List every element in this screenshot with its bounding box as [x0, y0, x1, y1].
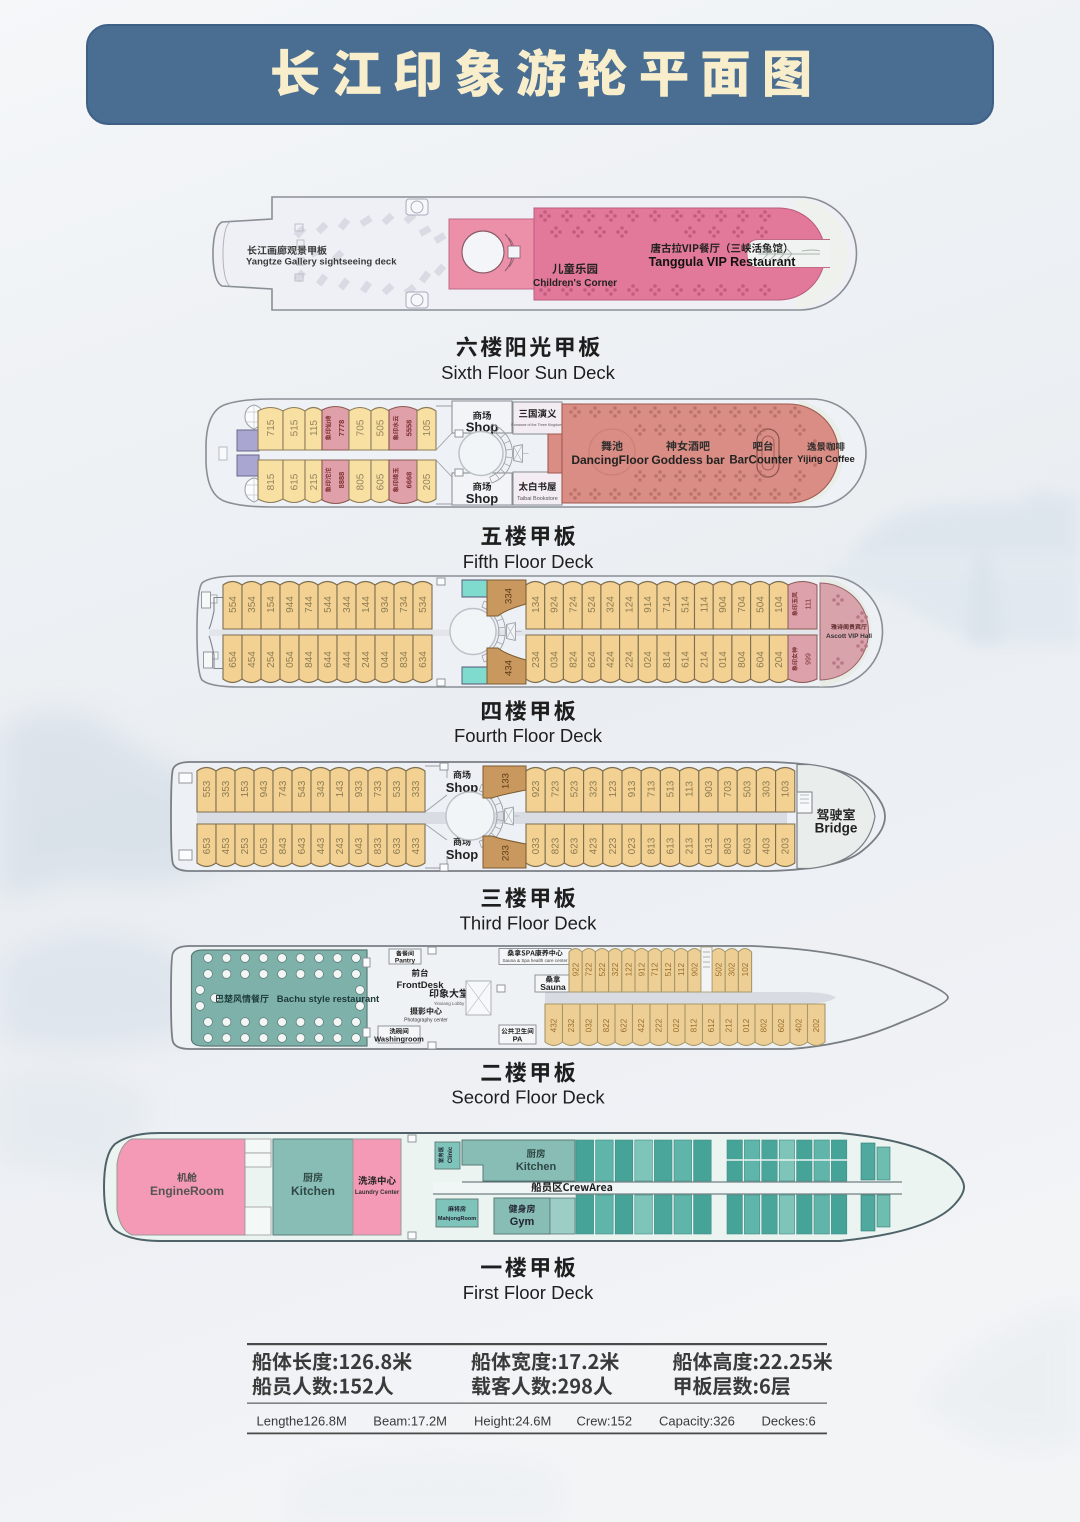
svg-text:634: 634	[418, 651, 429, 668]
svg-text:803: 803	[723, 837, 734, 854]
svg-text:454: 454	[247, 651, 258, 668]
svg-text:Sauna & Spa health care center: Sauna & Spa health care center	[502, 958, 568, 963]
svg-text:624: 624	[587, 651, 598, 668]
svg-text:603: 603	[742, 837, 753, 854]
svg-text:Washingroom: Washingroom	[374, 1035, 424, 1044]
svg-text:524: 524	[587, 596, 598, 613]
svg-text:734: 734	[399, 596, 410, 613]
svg-text:604: 604	[756, 651, 767, 668]
svg-text:914: 914	[643, 596, 654, 613]
svg-text:022: 022	[672, 1018, 681, 1032]
svg-text:833: 833	[373, 837, 384, 854]
svg-text:614: 614	[681, 651, 692, 668]
svg-text:014: 014	[718, 651, 729, 668]
svg-text:615: 615	[290, 473, 301, 490]
svg-text:143: 143	[335, 780, 346, 797]
svg-text:433: 433	[411, 837, 422, 854]
svg-text:453: 453	[221, 837, 232, 854]
svg-text:934: 934	[380, 596, 391, 613]
svg-text:444: 444	[342, 651, 353, 668]
svg-text:422: 422	[637, 1018, 646, 1032]
svg-text:212: 212	[725, 1018, 734, 1032]
svg-text:602: 602	[777, 1018, 786, 1032]
svg-text:724: 724	[568, 596, 579, 613]
svg-text:202: 202	[812, 1018, 821, 1032]
svg-text:Kitchen: Kitchen	[516, 1161, 557, 1173]
svg-text:623: 623	[570, 837, 581, 854]
svg-text:Fourth Floor Deck: Fourth Floor Deck	[454, 725, 603, 746]
svg-text:8888: 8888	[337, 472, 346, 489]
svg-text:153: 153	[240, 780, 251, 797]
svg-text:913: 913	[627, 780, 638, 797]
svg-text:Tanggula VIP Restaurant: Tanggula VIP Restaurant	[649, 255, 797, 269]
svg-text:254: 254	[266, 651, 277, 668]
svg-text:912: 912	[638, 962, 647, 976]
svg-text:933: 933	[354, 780, 365, 797]
svg-text:Yinxiang Lobby: Yinxiang Lobby	[434, 1001, 465, 1006]
svg-text:443: 443	[316, 837, 327, 854]
svg-text:303: 303	[762, 780, 773, 797]
svg-text:622: 622	[620, 1018, 629, 1032]
svg-text:6668: 6668	[405, 472, 414, 489]
svg-text:813: 813	[646, 837, 657, 854]
svg-text:123: 123	[608, 780, 619, 797]
svg-text:543: 543	[297, 780, 308, 797]
svg-text:533: 533	[392, 780, 403, 797]
svg-text:322: 322	[611, 962, 620, 976]
svg-text:103: 103	[781, 780, 792, 797]
svg-text:Ascott VIP Hall: Ascott VIP Hall	[826, 633, 872, 640]
svg-text:105: 105	[422, 419, 433, 436]
svg-text:824: 824	[568, 651, 579, 668]
svg-text:244: 244	[361, 651, 372, 668]
svg-text:505: 505	[376, 419, 387, 436]
svg-text:432: 432	[550, 1018, 559, 1032]
svg-text:032: 032	[585, 1018, 594, 1032]
svg-text:323: 323	[589, 780, 600, 797]
svg-text:Shop: Shop	[446, 847, 479, 862]
svg-text:PA: PA	[513, 1035, 523, 1044]
svg-text:924: 924	[550, 596, 561, 613]
svg-text:232: 232	[567, 1018, 576, 1032]
svg-text:Yijing Coffee: Yijing Coffee	[797, 454, 855, 465]
svg-text:743: 743	[278, 780, 289, 797]
svg-text:605: 605	[376, 473, 387, 490]
svg-text:544: 544	[323, 596, 334, 613]
svg-text:515: 515	[290, 419, 301, 436]
svg-text:Secord Floor Deck: Secord Floor Deck	[451, 1087, 605, 1108]
svg-text:514: 514	[681, 596, 692, 613]
svg-text:BarCounter: BarCounter	[729, 455, 793, 467]
svg-text:513: 513	[666, 780, 677, 797]
svg-text:943: 943	[259, 780, 270, 797]
svg-text:654: 654	[228, 651, 239, 668]
svg-text:Romance of the Three Kingdoms: Romance of the Three Kingdoms	[511, 423, 564, 427]
svg-text:133: 133	[500, 773, 511, 789]
svg-text:203: 203	[781, 837, 792, 854]
svg-text:333: 333	[411, 780, 422, 797]
svg-text:205: 205	[422, 473, 433, 490]
svg-text:5558: 5558	[405, 420, 414, 437]
svg-text:812: 812	[690, 1018, 699, 1032]
svg-text:115: 115	[309, 420, 320, 436]
svg-text:Sixth Floor Sun Deck: Sixth Floor Sun Deck	[441, 362, 616, 383]
svg-text:114: 114	[699, 596, 710, 612]
svg-text:024: 024	[643, 651, 654, 668]
svg-text:Laundry Center: Laundry Center	[355, 1190, 400, 1196]
svg-text:234: 234	[531, 651, 542, 668]
svg-text:844: 844	[304, 651, 315, 668]
svg-text:122: 122	[624, 962, 633, 976]
svg-text:904: 904	[718, 596, 729, 613]
svg-text:512: 512	[664, 962, 673, 976]
svg-text:013: 013	[704, 837, 715, 854]
svg-text:034: 034	[550, 651, 561, 668]
svg-text:154: 154	[266, 596, 277, 613]
svg-text:554: 554	[228, 596, 239, 613]
svg-text:714: 714	[662, 596, 673, 613]
svg-text:233: 233	[500, 845, 511, 861]
svg-text:402: 402	[795, 1018, 804, 1032]
svg-text:523: 523	[570, 780, 581, 797]
svg-text:213: 213	[685, 837, 696, 854]
svg-text:613: 613	[666, 837, 677, 854]
svg-text:111: 111	[806, 599, 813, 610]
svg-text:633: 633	[392, 837, 403, 854]
svg-text:903: 903	[704, 780, 715, 797]
svg-text:Deckes:6: Deckes:6	[762, 1414, 816, 1429]
svg-text:243: 243	[335, 837, 346, 854]
svg-text:403: 403	[762, 837, 773, 854]
svg-text:EngineRoom: EngineRoom	[150, 1184, 224, 1198]
svg-text:712: 712	[651, 962, 660, 976]
svg-text:423: 423	[589, 837, 600, 854]
svg-text:343: 343	[316, 780, 327, 797]
svg-text:424: 424	[606, 651, 617, 668]
svg-text:823: 823	[550, 837, 561, 854]
svg-text:344: 344	[342, 596, 353, 613]
svg-text:534: 534	[418, 596, 429, 613]
svg-text:713: 713	[646, 780, 657, 797]
svg-text:Photography center: Photography center	[404, 1018, 448, 1024]
svg-text:Sauna: Sauna	[540, 982, 566, 992]
svg-text:Lengthe126.8M: Lengthe126.8M	[257, 1414, 347, 1429]
svg-text:324: 324	[606, 596, 617, 613]
svg-text:704: 704	[737, 596, 748, 613]
svg-text:104: 104	[774, 596, 785, 613]
svg-text:Bachu style restaurant: Bachu style restaurant	[277, 994, 380, 1005]
svg-text:715: 715	[266, 419, 277, 436]
svg-text:023: 023	[627, 837, 638, 854]
svg-text:Crew:152: Crew:152	[577, 1414, 633, 1429]
svg-text:Height:24.6M: Height:24.6M	[474, 1414, 551, 1429]
svg-text:922: 922	[572, 962, 581, 976]
svg-text:215: 215	[309, 473, 320, 490]
svg-text:722: 722	[585, 962, 594, 976]
svg-text:124: 124	[624, 596, 635, 613]
svg-text:644: 644	[323, 651, 334, 668]
svg-text:902: 902	[690, 962, 699, 976]
svg-text:204: 204	[774, 651, 785, 668]
svg-text:Capacity:326: Capacity:326	[659, 1414, 735, 1429]
svg-text:802: 802	[760, 1018, 769, 1032]
svg-text:553: 553	[202, 780, 213, 797]
svg-text:353: 353	[221, 780, 232, 797]
svg-text:653: 653	[202, 837, 213, 854]
svg-text:Third Floor Deck: Third Floor Deck	[460, 913, 597, 934]
svg-text:First Floor Deck: First Floor Deck	[463, 1282, 594, 1303]
svg-text:224: 224	[624, 651, 635, 668]
svg-text:502: 502	[715, 962, 724, 976]
svg-text:054: 054	[285, 651, 296, 668]
svg-text:434: 434	[503, 660, 514, 676]
svg-text:733: 733	[373, 780, 384, 797]
svg-text:814: 814	[662, 651, 673, 668]
svg-text:Pantry: Pantry	[395, 958, 416, 965]
svg-text:Kitchen: Kitchen	[291, 1184, 335, 1198]
svg-text:944: 944	[285, 596, 296, 613]
svg-text:053: 053	[259, 837, 270, 854]
svg-text:804: 804	[737, 651, 748, 668]
svg-text:144: 144	[361, 596, 372, 613]
svg-text:223: 223	[608, 837, 619, 854]
svg-text:112: 112	[677, 963, 686, 976]
svg-text:214: 214	[699, 651, 710, 668]
svg-text:Fifth Floor Deck: Fifth Floor Deck	[463, 551, 594, 572]
svg-text:522: 522	[598, 962, 607, 976]
svg-text:302: 302	[728, 962, 737, 976]
svg-text:033: 033	[531, 837, 542, 854]
svg-text:354: 354	[247, 596, 258, 613]
svg-text:815: 815	[266, 473, 277, 490]
svg-text:703: 703	[723, 780, 734, 797]
svg-text:MahjongRoom: MahjongRoom	[438, 1216, 476, 1222]
svg-text:923: 923	[531, 780, 542, 797]
svg-text:843: 843	[278, 837, 289, 854]
svg-text:705: 705	[356, 419, 367, 436]
svg-text:503: 503	[742, 780, 753, 797]
svg-text:Beam:17.2M: Beam:17.2M	[373, 1414, 447, 1429]
svg-text:044: 044	[380, 651, 391, 668]
svg-text:DancingFloor: DancingFloor	[571, 453, 649, 467]
svg-text:334: 334	[503, 588, 514, 604]
svg-text:012: 012	[742, 1018, 751, 1032]
svg-text:643: 643	[297, 837, 308, 854]
svg-text:504: 504	[756, 596, 767, 613]
svg-text:Yangtze Gallery sightseeing de: Yangtze Gallery sightseeing deck	[246, 257, 397, 268]
svg-text:Taibai Bookstore: Taibai Bookstore	[517, 496, 558, 502]
svg-text:Shop: Shop	[466, 491, 499, 506]
svg-text:723: 723	[550, 780, 561, 797]
svg-text:7778: 7778	[337, 420, 346, 437]
svg-text:113: 113	[685, 781, 696, 797]
svg-text:822: 822	[602, 1018, 611, 1032]
svg-text:Bridge: Bridge	[815, 821, 858, 836]
svg-text:834: 834	[399, 651, 410, 668]
svg-text:805: 805	[356, 473, 367, 490]
svg-text:Gym: Gym	[510, 1216, 535, 1228]
svg-text:043: 043	[354, 837, 365, 854]
svg-text:134: 134	[531, 596, 542, 613]
svg-text:999: 999	[806, 653, 813, 665]
svg-text:612: 612	[707, 1018, 716, 1032]
svg-text:Clinic: Clinic	[448, 1146, 454, 1163]
svg-text:222: 222	[655, 1018, 664, 1032]
svg-text:102: 102	[741, 962, 750, 976]
svg-text:Children's Corner: Children's Corner	[533, 278, 617, 289]
svg-text:744: 744	[304, 596, 315, 613]
svg-text:Goddess bar: Goddess bar	[651, 453, 725, 467]
svg-text:253: 253	[240, 837, 251, 854]
